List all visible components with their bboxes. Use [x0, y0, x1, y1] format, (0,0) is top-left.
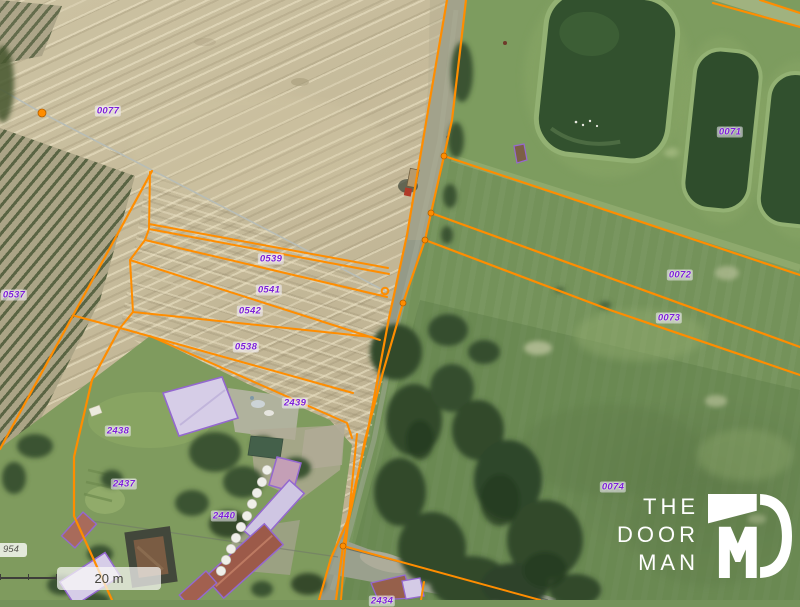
- logo-line-3: MAN: [638, 549, 699, 577]
- doorman-logo-mark-icon: [708, 493, 792, 579]
- parcel-label-0073[interactable]: 0073: [656, 313, 682, 324]
- parcel-label-0539[interactable]: 0539: [258, 254, 284, 265]
- vertex-marker[interactable]: [400, 300, 406, 306]
- vertex-marker[interactable]: [340, 543, 346, 549]
- doorman-logo-text: THE DOOR MAN: [617, 493, 699, 577]
- parcel-label-0541[interactable]: 0541: [256, 285, 282, 296]
- logo-line-2: DOOR: [617, 521, 699, 549]
- parcel-label-0072[interactable]: 0072: [667, 270, 693, 281]
- logo-line-1: THE: [643, 493, 699, 521]
- vertex-marker[interactable]: [422, 237, 428, 243]
- tractor: [404, 187, 412, 196]
- parcel-label-2440[interactable]: 2440: [211, 511, 237, 522]
- scale-bar: 20 m: [0, 566, 170, 594]
- parcel-label-0074[interactable]: 0074: [600, 482, 626, 493]
- vertex-marker[interactable]: [428, 210, 434, 216]
- yard-clutter: [264, 410, 274, 416]
- parcel-label-2434[interactable]: 2434: [369, 596, 395, 607]
- parcel-label-2439[interactable]: 2439: [282, 398, 308, 409]
- scale-bar-label: 20 m: [57, 567, 161, 590]
- parcel-label-0538[interactable]: 0538: [233, 342, 259, 353]
- yard-clutter: [251, 400, 265, 408]
- parcel-label-0077[interactable]: 0077: [95, 106, 121, 117]
- vertex-marker[interactable]: [38, 109, 46, 117]
- doorman-logo: THE DOOR MAN: [617, 493, 792, 579]
- parcel-label-0537[interactable]: 0537: [1, 290, 27, 301]
- scale-tick: [0, 574, 1, 580]
- map-canvas[interactable]: 0077053705390541054205382439243824372440…: [0, 0, 800, 600]
- scale-tick: [28, 574, 29, 580]
- vertex-marker[interactable]: [441, 153, 447, 159]
- parcel-label-0071[interactable]: 0071: [717, 127, 743, 138]
- parcel-label-2438[interactable]: 2438: [105, 426, 131, 437]
- green-shed: [248, 436, 283, 459]
- pond-shed: [514, 144, 527, 163]
- parcel-label-0542[interactable]: 0542: [237, 306, 263, 317]
- field-texture-spots: [130, 38, 390, 205]
- parcel-label-2437[interactable]: 2437: [111, 479, 137, 490]
